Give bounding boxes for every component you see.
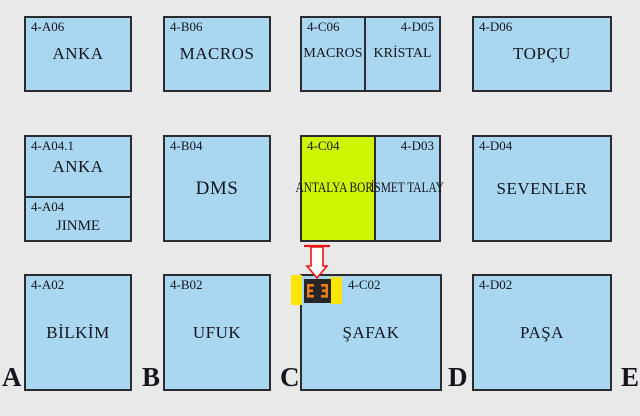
booth-4-A06[interactable]: 4-A06 ANKA xyxy=(24,16,132,92)
booth-4-A04[interactable]: 4-A04 JINME xyxy=(24,196,132,242)
aisle-label-c: C xyxy=(280,364,300,391)
booth-name: BİLKİM xyxy=(46,323,109,343)
booth-name: SEVENLER xyxy=(497,179,588,199)
booth-4-B04[interactable]: 4-B04 DMS xyxy=(163,135,271,242)
booth-name: DMS xyxy=(196,178,239,200)
booth-name: ŞAFAK xyxy=(343,323,400,343)
booth-name: JINME xyxy=(56,218,100,235)
aisle-label-e: E xyxy=(621,364,639,391)
booth-name: UFUK xyxy=(193,323,241,343)
booth-name: KRİSTAL xyxy=(374,46,432,62)
booth-4-D03[interactable]: 4-D03 İSMET TALAY xyxy=(374,135,441,242)
exhibition-floor-plan: 4-A06 ANKA 4-B06 MACROS 4-C06 MACROS 4-D… xyxy=(0,0,640,416)
booth-4-C06[interactable]: 4-C06 MACROS xyxy=(300,16,366,92)
booth-4-D06[interactable]: 4-D06 TOPÇU xyxy=(472,16,612,92)
booth-name: MACROS xyxy=(303,46,362,62)
booth-4-D02[interactable]: 4-D02 PAŞA xyxy=(472,274,612,391)
booth-4-D05[interactable]: 4-D05 KRİSTAL xyxy=(364,16,441,92)
booth-4-D04[interactable]: 4-D04 SEVENLER xyxy=(472,135,612,242)
booth-4-B02[interactable]: 4-B02 UFUK xyxy=(163,274,271,391)
marker-highlight-strip-left xyxy=(291,275,302,305)
booth-name: ANKA xyxy=(52,157,103,177)
booth-name: MACROS xyxy=(180,44,255,64)
booth-4-C04-highlighted[interactable]: 4-C04 ANTALYA BORA xyxy=(300,135,376,242)
down-arrow-pointer-icon xyxy=(303,244,331,285)
booth-name: TOPÇU xyxy=(513,44,571,64)
aisle-label-b: B xyxy=(142,364,160,391)
booth-4-A04-1[interactable]: 4-A04.1 ANKA xyxy=(24,135,132,198)
booth-name: PAŞA xyxy=(520,323,564,343)
booth-name: İSMET TALAY xyxy=(371,180,444,197)
booth-4-A02[interactable]: 4-A02 BİLKİM xyxy=(24,274,132,391)
aisle-label-d: D xyxy=(448,364,468,391)
aisle-label-a: A xyxy=(2,364,22,391)
booth-name: ANKA xyxy=(52,44,103,64)
marker-highlight-strip-right xyxy=(330,277,342,304)
booth-name: ANTALYA BORA xyxy=(295,180,381,197)
booth-4-B06[interactable]: 4-B06 MACROS xyxy=(163,16,271,92)
